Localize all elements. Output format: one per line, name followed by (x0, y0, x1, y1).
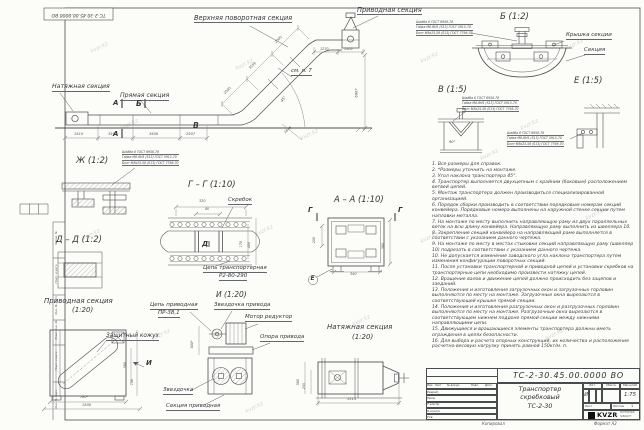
label-drive-chain: Цепь приводная (150, 303, 198, 310)
section-marker-b: Б (136, 100, 142, 108)
dim-aa-380: 380 (382, 243, 385, 249)
lit-value: И (583, 393, 589, 398)
detail-zh (62, 183, 130, 214)
dim-tension-1515: 1515 (347, 398, 356, 402)
label-tension-section: Натяжная секция (52, 84, 110, 92)
frame-field-podp2: Подп. и дата (54, 342, 58, 380)
tb-row-nkontr (426, 414, 497, 420)
dim-1515: 1515 (74, 133, 83, 137)
detail-marker-e: Е (311, 277, 315, 283)
dim-tension-255: 255 (303, 383, 306, 389)
dim-aa-200: 200 (313, 237, 316, 243)
title-drive-section-scale: (1:20) (72, 307, 93, 314)
sheet-label: Лист (585, 405, 592, 408)
note-item: 12. Вращение валов и движение цепей долж… (432, 277, 639, 288)
fastener-line-bolt: Болт М8х25.58 (S13) ГОСТ 7798-70 (462, 107, 519, 112)
title-section-dd: Д – Д (1:2) (56, 236, 102, 245)
fastener-callout-e: Шайба 8 ГОСТ 6958-78 Гайка М8-6Н5 (S13) … (507, 131, 564, 147)
label-conveyor-chain-type: Р2-80-290 (219, 274, 247, 281)
note-item: 15. Движущиеся и вращающиеся элементы тр… (432, 327, 639, 338)
note-item: 10. Не допускается изменение заводского … (432, 254, 639, 265)
label-upper-turn-section: Верхняя поворотная секция (194, 15, 292, 23)
doc-number: ТС-2-30.45.00.0000 ВО (497, 372, 640, 380)
note-item: 3. Угол наклона транспортера 45°. (432, 174, 639, 179)
label-motor-reducer: Мотор редуктор (245, 315, 292, 322)
dim-drive-700: 700 (131, 379, 134, 385)
doc-name-2: скребковый (497, 395, 583, 401)
label-sprocket: Звездочка (163, 388, 193, 395)
title-view-zh: Ж (1:2) (76, 157, 108, 166)
tb-tkontr: Т.контр. (427, 403, 440, 406)
tb-header-doc: № докум. (447, 385, 460, 388)
kvzr-logo-mark (588, 412, 595, 419)
mass-header: Масса (602, 384, 620, 387)
title-tension-section-scale: (1:20) (352, 334, 373, 341)
tb-razrab: Разраб. (427, 391, 439, 394)
scale-value: 1:75 (620, 393, 640, 398)
kvzr-logo-sub1: КОТЕЛЬНЫЙ (620, 412, 634, 414)
mass-value-cell (602, 389, 620, 403)
label-see-note-7: см. п. 7 (291, 69, 312, 76)
dim-1505: 1505 (344, 48, 353, 51)
drawing-sheet: kvzr.kz kvzr.kz kvzr.kz kvzr.kz kvzr.kz … (0, 0, 644, 430)
dim-gg-80: 80 (205, 208, 209, 211)
view-marker-v: В (193, 122, 199, 130)
fastener-callout-b: Шайба 8 ГОСТ 6958-78 Гайка М8-6Н5 (S13) … (416, 20, 473, 36)
label-protective-cover: Защитный кожух (106, 334, 159, 341)
title-view-e: Е (1:5) (574, 77, 602, 86)
kvzr-logo-text: KVZR (597, 412, 618, 418)
label-conveyor-chain: Цепь транспортерная (203, 266, 267, 273)
scale-header: Масштаб (620, 384, 640, 387)
label-section-cover: Крышка секции (566, 33, 612, 40)
title-view-b: Б (1:2) (500, 13, 529, 22)
i-view (190, 311, 270, 405)
label-section: Секция (584, 48, 605, 55)
note-item: 4. Транспортер выполняется двухцепным с … (432, 180, 639, 191)
note-item: 2. *Размеры уточнить на монтаже. (432, 168, 639, 173)
tb-nkontr: Н.контр. (427, 410, 440, 413)
note-item: 14. Положения и изготовления разгрузочны… (432, 305, 639, 327)
tension-section-view (305, 358, 409, 405)
section-marker-g-left: Г (308, 207, 312, 214)
title-section-aa: А – А (1:10) (334, 196, 384, 205)
fastener-line-bolt: Болт М8х25.58 (S13) ГОСТ 7798-70 (507, 142, 564, 147)
label-drive-sprocket: Звездочка привода (214, 303, 270, 310)
tb-utv: Утв. (427, 416, 433, 419)
fastener-line-bolt: Болт М8х25.58 (S13) ГОСТ 7798-70 (122, 161, 179, 166)
dim-gg-320: 320 (199, 200, 205, 203)
dim-3500-2: 3500 (149, 133, 158, 137)
label-drive-support: Опора привода (260, 335, 304, 342)
frame-field-inv-podl: Инв. № подл. (54, 380, 58, 418)
kvzr-logo-sub2: ЗАВОД РТ (620, 416, 631, 418)
note-item: 9. На монтаже по месту в местах стыковки… (432, 242, 639, 253)
tb-header-podp: Подп. (471, 385, 479, 388)
tb-header-data: Дата (485, 385, 492, 388)
label-drive-section-part: Секция приводная (166, 404, 220, 411)
copy-label: Копировал (482, 422, 505, 426)
title-view-i: И (1:20) (216, 291, 247, 299)
view-marker-i: И (146, 360, 152, 367)
note-item: 1. Все размеры для справок. (432, 162, 639, 167)
dim-i-800: 800* (191, 341, 194, 349)
section-marker-a-top: А (113, 100, 118, 107)
tb-header-izm: Изм. (427, 385, 433, 388)
sheets-label: Листов (613, 405, 624, 408)
tb-row-line-1 (426, 376, 497, 377)
doc-name-3: ТС-2-30 (497, 404, 583, 410)
tb-prov: Пров. (427, 397, 436, 400)
lit-header: Лит. (583, 384, 602, 387)
label-straight-section: Прямая секция (120, 93, 169, 101)
title-tension-section-view: Натяжная секция (327, 324, 392, 331)
note-item: 16. Для выбора и расчета опорных констру… (432, 339, 639, 350)
dim-gg-170: 170 (240, 241, 243, 247)
note-item: 11. После установки транспортерной и при… (432, 265, 639, 276)
dim-drive-1500: 1500 (82, 404, 91, 408)
detail-e (570, 104, 620, 148)
main-view-linework (55, 13, 372, 132)
dim-aa-340: 340 (350, 273, 356, 276)
detail-v (438, 109, 484, 153)
sheets-value: 1 (631, 405, 633, 408)
note-item: 8. Закрепление секций конвейера на напра… (432, 231, 639, 242)
label-scraper: Скребок (228, 198, 252, 205)
fastener-line-bolt: Болт М8х25.58 (S13) ГОСТ 7798-70 (416, 31, 473, 36)
dim-drive-560: 560 (124, 362, 127, 368)
dim-drive-780: 780* (80, 396, 88, 399)
dim-v-90deg: 90° (449, 141, 455, 145)
note-item: 5. Монтаж транспортера должен производит… (432, 191, 639, 202)
fastener-callout-zh: Шайба 8 ГОСТ 6958-78 Гайка М8-6Н5 (S13) … (122, 150, 179, 166)
dim-6907: 6907 (355, 88, 359, 97)
dim-tension-560: 560 (297, 379, 300, 385)
title-view-v: В (1:5) (438, 86, 467, 95)
note-item: 13. Положения и изготовления загрузочных… (432, 288, 639, 304)
format-label: Формат А2 (594, 422, 617, 426)
title-drive-section-view: Приводная секция (44, 298, 113, 305)
doc-name-1: Транспортер (497, 387, 583, 393)
dim-1270: 1270 (320, 48, 329, 51)
note-item: 7. На монтаже по месту выполнить направл… (432, 220, 639, 231)
label-drive-chain-type: ПР-38,1 (158, 311, 180, 318)
label-drive-section: Приводная секция (357, 7, 422, 15)
technical-notes: 1. Все размеры для справок. 2. *Размеры … (432, 162, 639, 350)
note-item: 6. Порядок сборки производить в соответс… (432, 203, 639, 219)
dim-gg-400: 400 (248, 242, 251, 248)
stamp-doc-number: ТС-2-30.45.00.0000 ВО (44, 8, 113, 20)
tb-header-list: Лист (435, 385, 442, 388)
detail-gg (161, 205, 260, 266)
dim-2507: 2507 (186, 133, 195, 137)
fastener-callout-v: Шайба 8 ГОСТ 6958-78 Гайка М8-6Н5 (S13) … (462, 96, 519, 112)
title-section-gg: Г – Г (1:10) (188, 181, 236, 190)
dim-3500-1: 3500 (108, 133, 117, 137)
section-marker-g-right: Г (398, 207, 402, 214)
section-marker-d: Д (202, 241, 208, 248)
